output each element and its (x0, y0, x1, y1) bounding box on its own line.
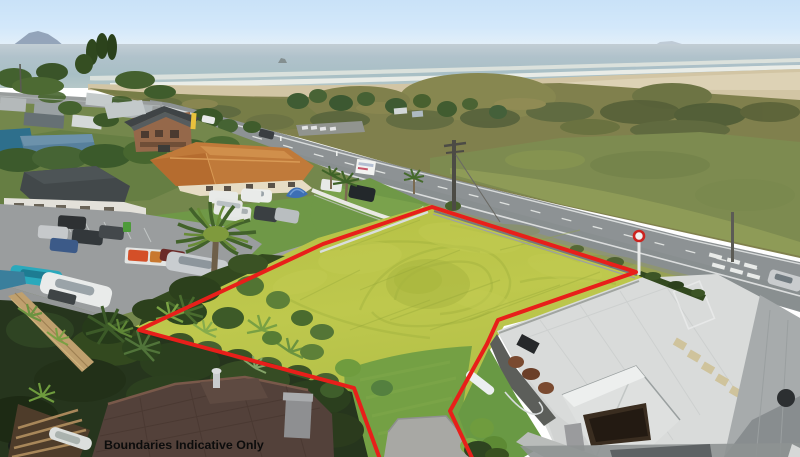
svg-text:Boundaries Indicative Only: Boundaries Indicative Only (104, 438, 264, 452)
